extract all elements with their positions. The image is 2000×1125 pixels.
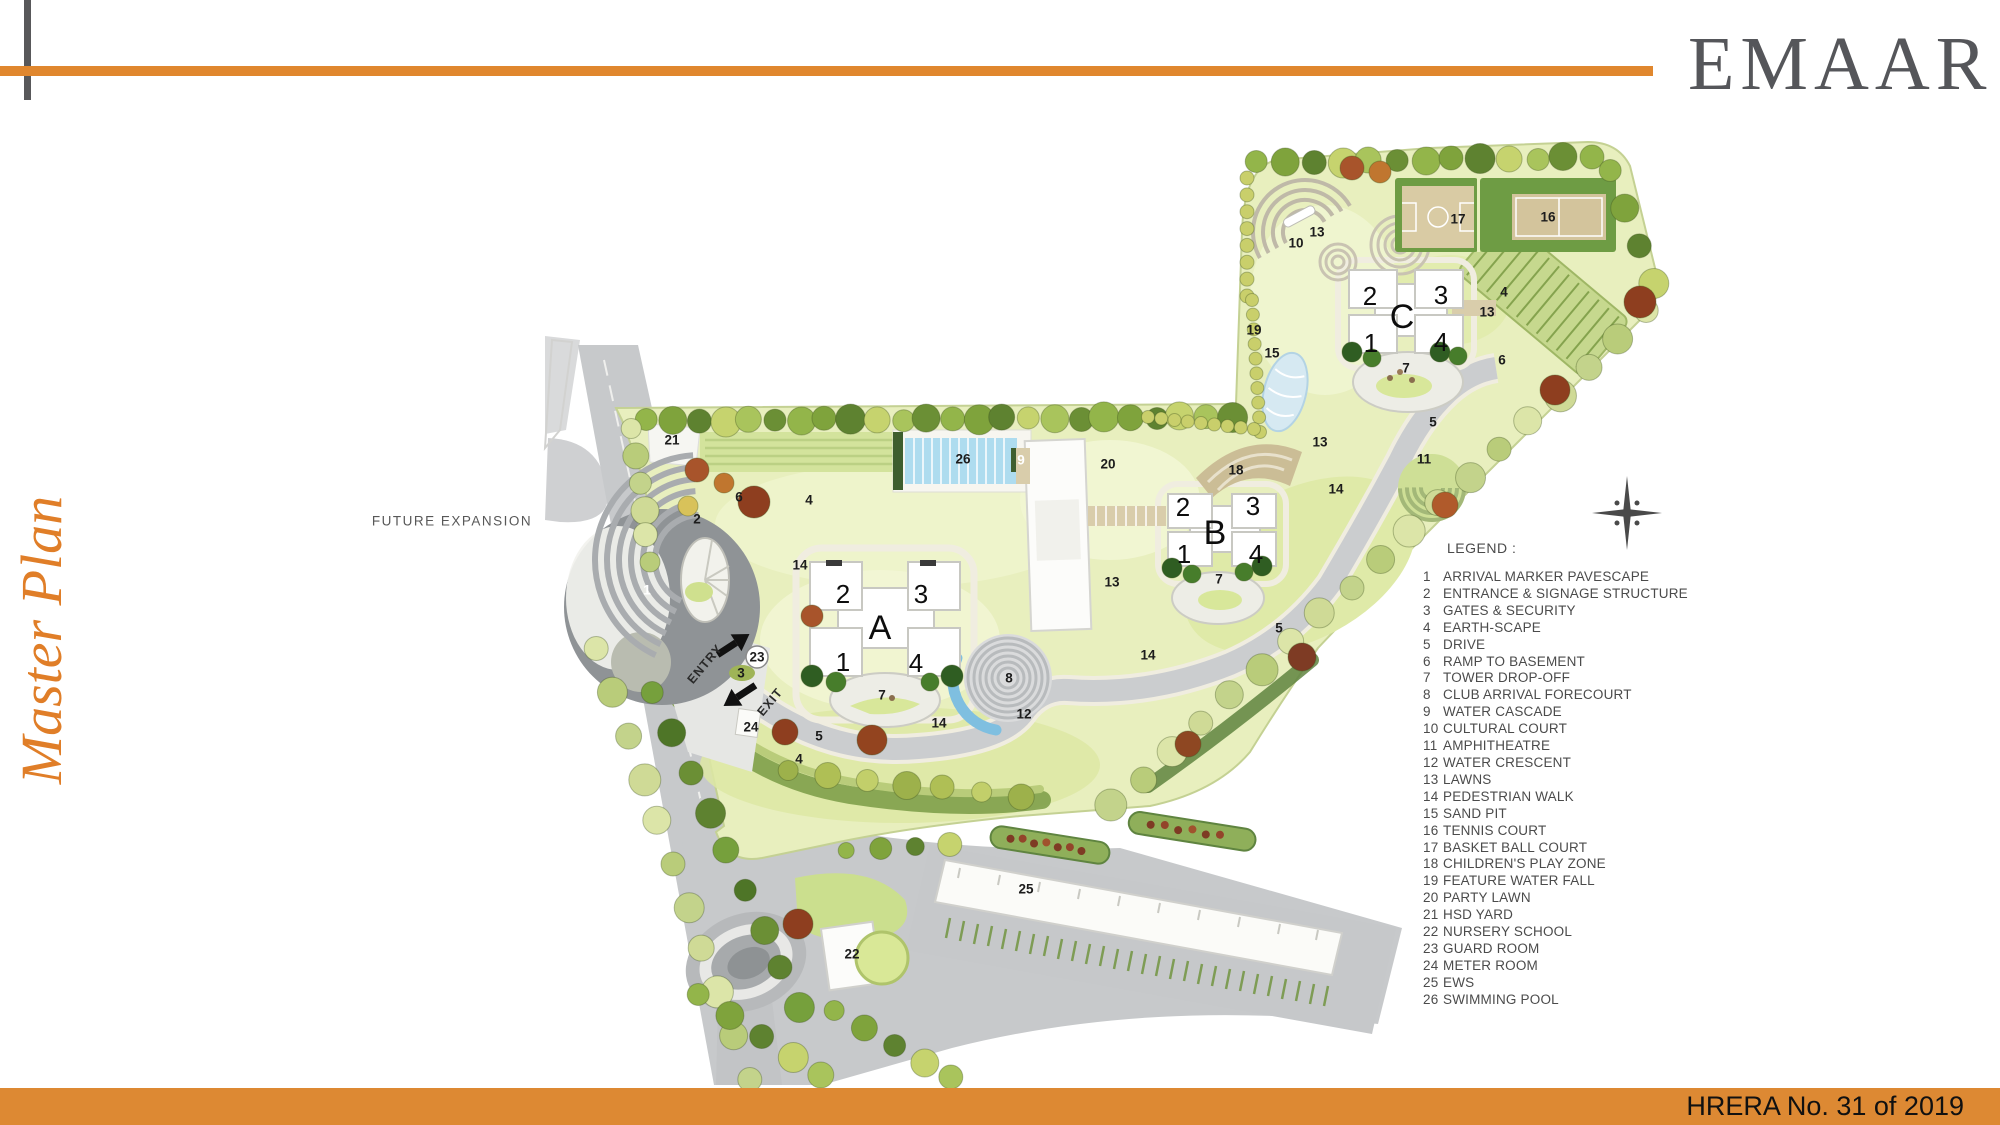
legend-item: 24METER ROOM — [1423, 958, 1693, 975]
map-label: 10 — [1288, 236, 1303, 251]
map-label: 21 — [664, 433, 680, 448]
map-label: 13 — [1309, 225, 1325, 240]
map-label: 4 — [795, 752, 803, 767]
map-label: 4 — [805, 493, 813, 508]
map-label: 16 — [1540, 210, 1556, 225]
map-label: 4 — [1249, 539, 1263, 569]
map-label: 7 — [1215, 572, 1223, 587]
map-label: 22 — [844, 947, 859, 962]
legend-item: 9WATER CASCADE — [1423, 704, 1693, 721]
map-label: 26 — [955, 452, 971, 467]
map-label: 14 — [931, 716, 947, 731]
legend-item: 25EWS — [1423, 975, 1693, 992]
legend-item: 8CLUB ARRIVAL FORECOURT — [1423, 687, 1693, 704]
legend-item: 18CHILDREN'S PLAY ZONE — [1423, 856, 1693, 873]
map-label: 14 — [792, 558, 808, 573]
map-label: 1 — [836, 647, 850, 677]
map-label: 3 — [1434, 280, 1448, 310]
map-label: 3 — [914, 579, 928, 609]
page-title: Master Plan — [10, 440, 74, 840]
map-label: 17 — [1450, 212, 1465, 227]
map-label: 5 — [815, 729, 823, 744]
map-label: 14 — [1328, 482, 1344, 497]
map-label: 5 — [1275, 621, 1283, 636]
legend-item: 21HSD YARD — [1423, 907, 1693, 924]
legend-item: 15SAND PIT — [1423, 806, 1693, 823]
map-label: 12 — [1016, 707, 1031, 722]
legend-panel: LEGEND : 1ARRIVAL MARKER PAVESCAPE2ENTRA… — [1423, 540, 1693, 1009]
legend-item: 22NURSERY SCHOOL — [1423, 924, 1693, 941]
map-label: C — [1390, 298, 1415, 336]
map-label: 1 — [1364, 328, 1378, 358]
map-label: 11 — [1417, 452, 1432, 467]
legend-item: 12WATER CRESCENT — [1423, 755, 1693, 772]
map-label: 3 — [737, 666, 745, 681]
legend-item: 7TOWER DROP-OFF — [1423, 670, 1693, 687]
legend-item: 17BASKET BALL COURT — [1423, 840, 1693, 857]
header-accent-rule — [0, 66, 1653, 76]
legend-item: 26SWIMMING POOL — [1423, 992, 1693, 1009]
footer-bar: HRERA No. 31 of 2019 — [0, 1088, 2000, 1125]
map-label: 13 — [1479, 305, 1495, 320]
legend-item: 19FEATURE WATER FALL — [1423, 873, 1693, 890]
legend-item: 3GATES & SECURITY — [1423, 603, 1693, 620]
legend-item: 1ARRIVAL MARKER PAVESCAPE — [1423, 569, 1693, 586]
map-label: 14 — [1140, 648, 1156, 663]
legend-items: 1ARRIVAL MARKER PAVESCAPE2ENTRANCE & SIG… — [1423, 569, 1693, 1009]
map-label: 4 — [909, 648, 923, 678]
map-label: 1 — [1177, 539, 1191, 569]
legend-item: 4EARTH-SCAPE — [1423, 620, 1693, 637]
map-label: 3 — [1246, 491, 1260, 521]
map-label: 23 — [749, 650, 765, 665]
map-label: 2 — [1176, 492, 1190, 522]
footer-rera-text: HRERA No. 31 of 2019 — [1686, 1088, 1964, 1125]
site-plan-map: FUTURE EXPANSION ENTRY EXIT 216241412692… — [0, 0, 2000, 1125]
map-label: B — [1204, 514, 1227, 552]
legend-item: 5DRIVE — [1423, 637, 1693, 654]
map-label: A — [869, 609, 892, 647]
master-plan-page: FUTURE EXPANSION ENTRY EXIT 216241412692… — [0, 0, 2000, 1125]
map-label: 2 — [693, 512, 701, 527]
legend-item: 14PEDESTRIAN WALK — [1423, 789, 1693, 806]
map-label: 24 — [743, 720, 759, 735]
legend-item: 13LAWNS — [1423, 772, 1693, 789]
map-label: 8 — [1005, 671, 1013, 686]
legend-item: 6RAMP TO BASEMENT — [1423, 654, 1693, 671]
map-label: 6 — [735, 490, 743, 505]
legend-title: LEGEND : — [1447, 540, 1693, 556]
map-label: 4 — [1500, 285, 1508, 300]
emaar-logo: EMAAR — [1688, 26, 1978, 102]
legend-item: 11AMPHITHEATRE — [1423, 738, 1693, 755]
map-label: 4 — [1434, 327, 1448, 357]
compass-icon — [1592, 476, 1662, 550]
map-label: 2 — [1363, 281, 1377, 311]
map-label: 25 — [1018, 882, 1034, 897]
map-label: 2 — [836, 579, 850, 609]
map-label: 5 — [1429, 415, 1437, 430]
map-label: 19 — [1246, 323, 1261, 338]
map-label: 6 — [1498, 353, 1506, 368]
map-label: 9 — [1017, 453, 1025, 468]
map-label: 1 — [643, 583, 651, 598]
map-label: 7 — [1402, 361, 1410, 376]
legend-item: 20PARTY LAWN — [1423, 890, 1693, 907]
map-label: 18 — [1228, 463, 1244, 478]
map-label: 20 — [1100, 457, 1115, 472]
map-label: 13 — [1104, 575, 1120, 590]
map-label: 13 — [1312, 435, 1328, 450]
legend-item: 10CULTURAL COURT — [1423, 721, 1693, 738]
legend-item: 2ENTRANCE & SIGNAGE STRUCTURE — [1423, 586, 1693, 603]
map-label: 7 — [878, 688, 886, 703]
header-vertical-rule — [24, 0, 31, 100]
future-expansion-label: FUTURE EXPANSION — [372, 514, 532, 529]
map-label: 15 — [1264, 346, 1280, 361]
legend-item: 16TENNIS COURT — [1423, 823, 1693, 840]
legend-item: 23GUARD ROOM — [1423, 941, 1693, 958]
